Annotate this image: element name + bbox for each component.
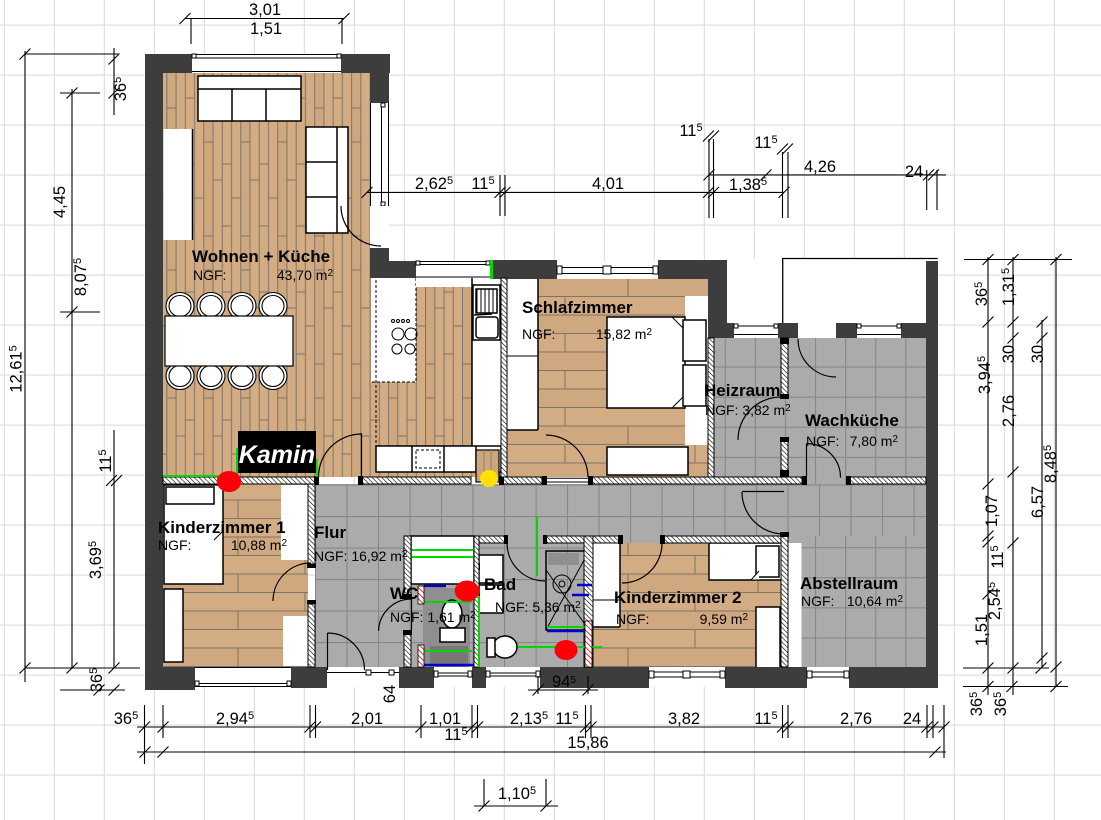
svg-text:NGF: 5,36 m2: NGF: 5,36 m2 <box>495 599 581 615</box>
svg-text:NGF:: NGF: <box>801 593 834 609</box>
svg-text:4,01: 4,01 <box>592 175 624 193</box>
svg-text:6,57: 6,57 <box>1029 486 1047 518</box>
svg-text:43,70 m2: 43,70 m2 <box>277 267 334 283</box>
svg-text:9,59 m2: 9,59 m2 <box>700 611 749 627</box>
svg-text:Kamin: Kamin <box>239 441 315 469</box>
svg-text:24: 24 <box>905 163 923 181</box>
svg-text:1,51: 1,51 <box>250 20 282 38</box>
svg-text:64: 64 <box>381 685 399 703</box>
svg-text:NGF:: NGF: <box>806 433 839 449</box>
svg-text:1,07: 1,07 <box>983 495 1001 527</box>
svg-text:3,82: 3,82 <box>668 710 700 728</box>
svg-text:15,86: 15,86 <box>567 734 608 752</box>
svg-text:NGF:: NGF: <box>158 537 191 553</box>
svg-text:Kinderzimmer 2: Kinderzimmer 2 <box>614 588 742 607</box>
svg-text:12,615: 12,615 <box>8 345 26 392</box>
svg-text:3,01: 3,01 <box>249 1 281 19</box>
svg-text:Flur: Flur <box>314 523 346 542</box>
svg-text:Wohnen + Küche: Wohnen + Küche <box>192 247 330 266</box>
svg-text:30: 30 <box>1000 345 1018 363</box>
svg-text:10,64 m2: 10,64 m2 <box>847 593 904 609</box>
svg-text:Kinderzimmer 1: Kinderzimmer 1 <box>158 518 286 537</box>
svg-text:Schlafzimmer: Schlafzimmer <box>522 298 633 317</box>
svg-text:2,01: 2,01 <box>351 710 383 728</box>
svg-text:Wachküche: Wachküche <box>805 411 899 430</box>
svg-text:NGF:: NGF: <box>616 611 649 627</box>
svg-text:NGF: 1,61 m2: NGF: 1,61 m2 <box>390 609 476 625</box>
svg-text:30: 30 <box>1029 345 1047 363</box>
svg-text:2,76: 2,76 <box>1000 395 1018 427</box>
svg-text:24: 24 <box>903 710 921 728</box>
svg-text:Abstellraum: Abstellraum <box>800 574 898 593</box>
svg-text:4,26: 4,26 <box>804 158 836 176</box>
svg-text:Heizraum: Heizraum <box>704 381 781 400</box>
svg-text:NGF: 3,82 m2: NGF: 3,82 m2 <box>705 402 791 418</box>
svg-text:2,76: 2,76 <box>840 710 872 728</box>
svg-text:7,80 m2: 7,80 m2 <box>850 433 899 449</box>
svg-text:WC: WC <box>390 584 418 603</box>
svg-text:4,45: 4,45 <box>51 186 69 218</box>
svg-text:NGF: 16,92 m2: NGF: 16,92 m2 <box>314 548 408 564</box>
svg-text:15,82 m2: 15,82 m2 <box>596 326 653 342</box>
svg-text:Bad: Bad <box>484 575 516 594</box>
svg-text:NGF:: NGF: <box>522 326 555 342</box>
svg-text:NGF:: NGF: <box>193 267 226 283</box>
svg-text:10,88 m2: 10,88 m2 <box>231 537 288 553</box>
